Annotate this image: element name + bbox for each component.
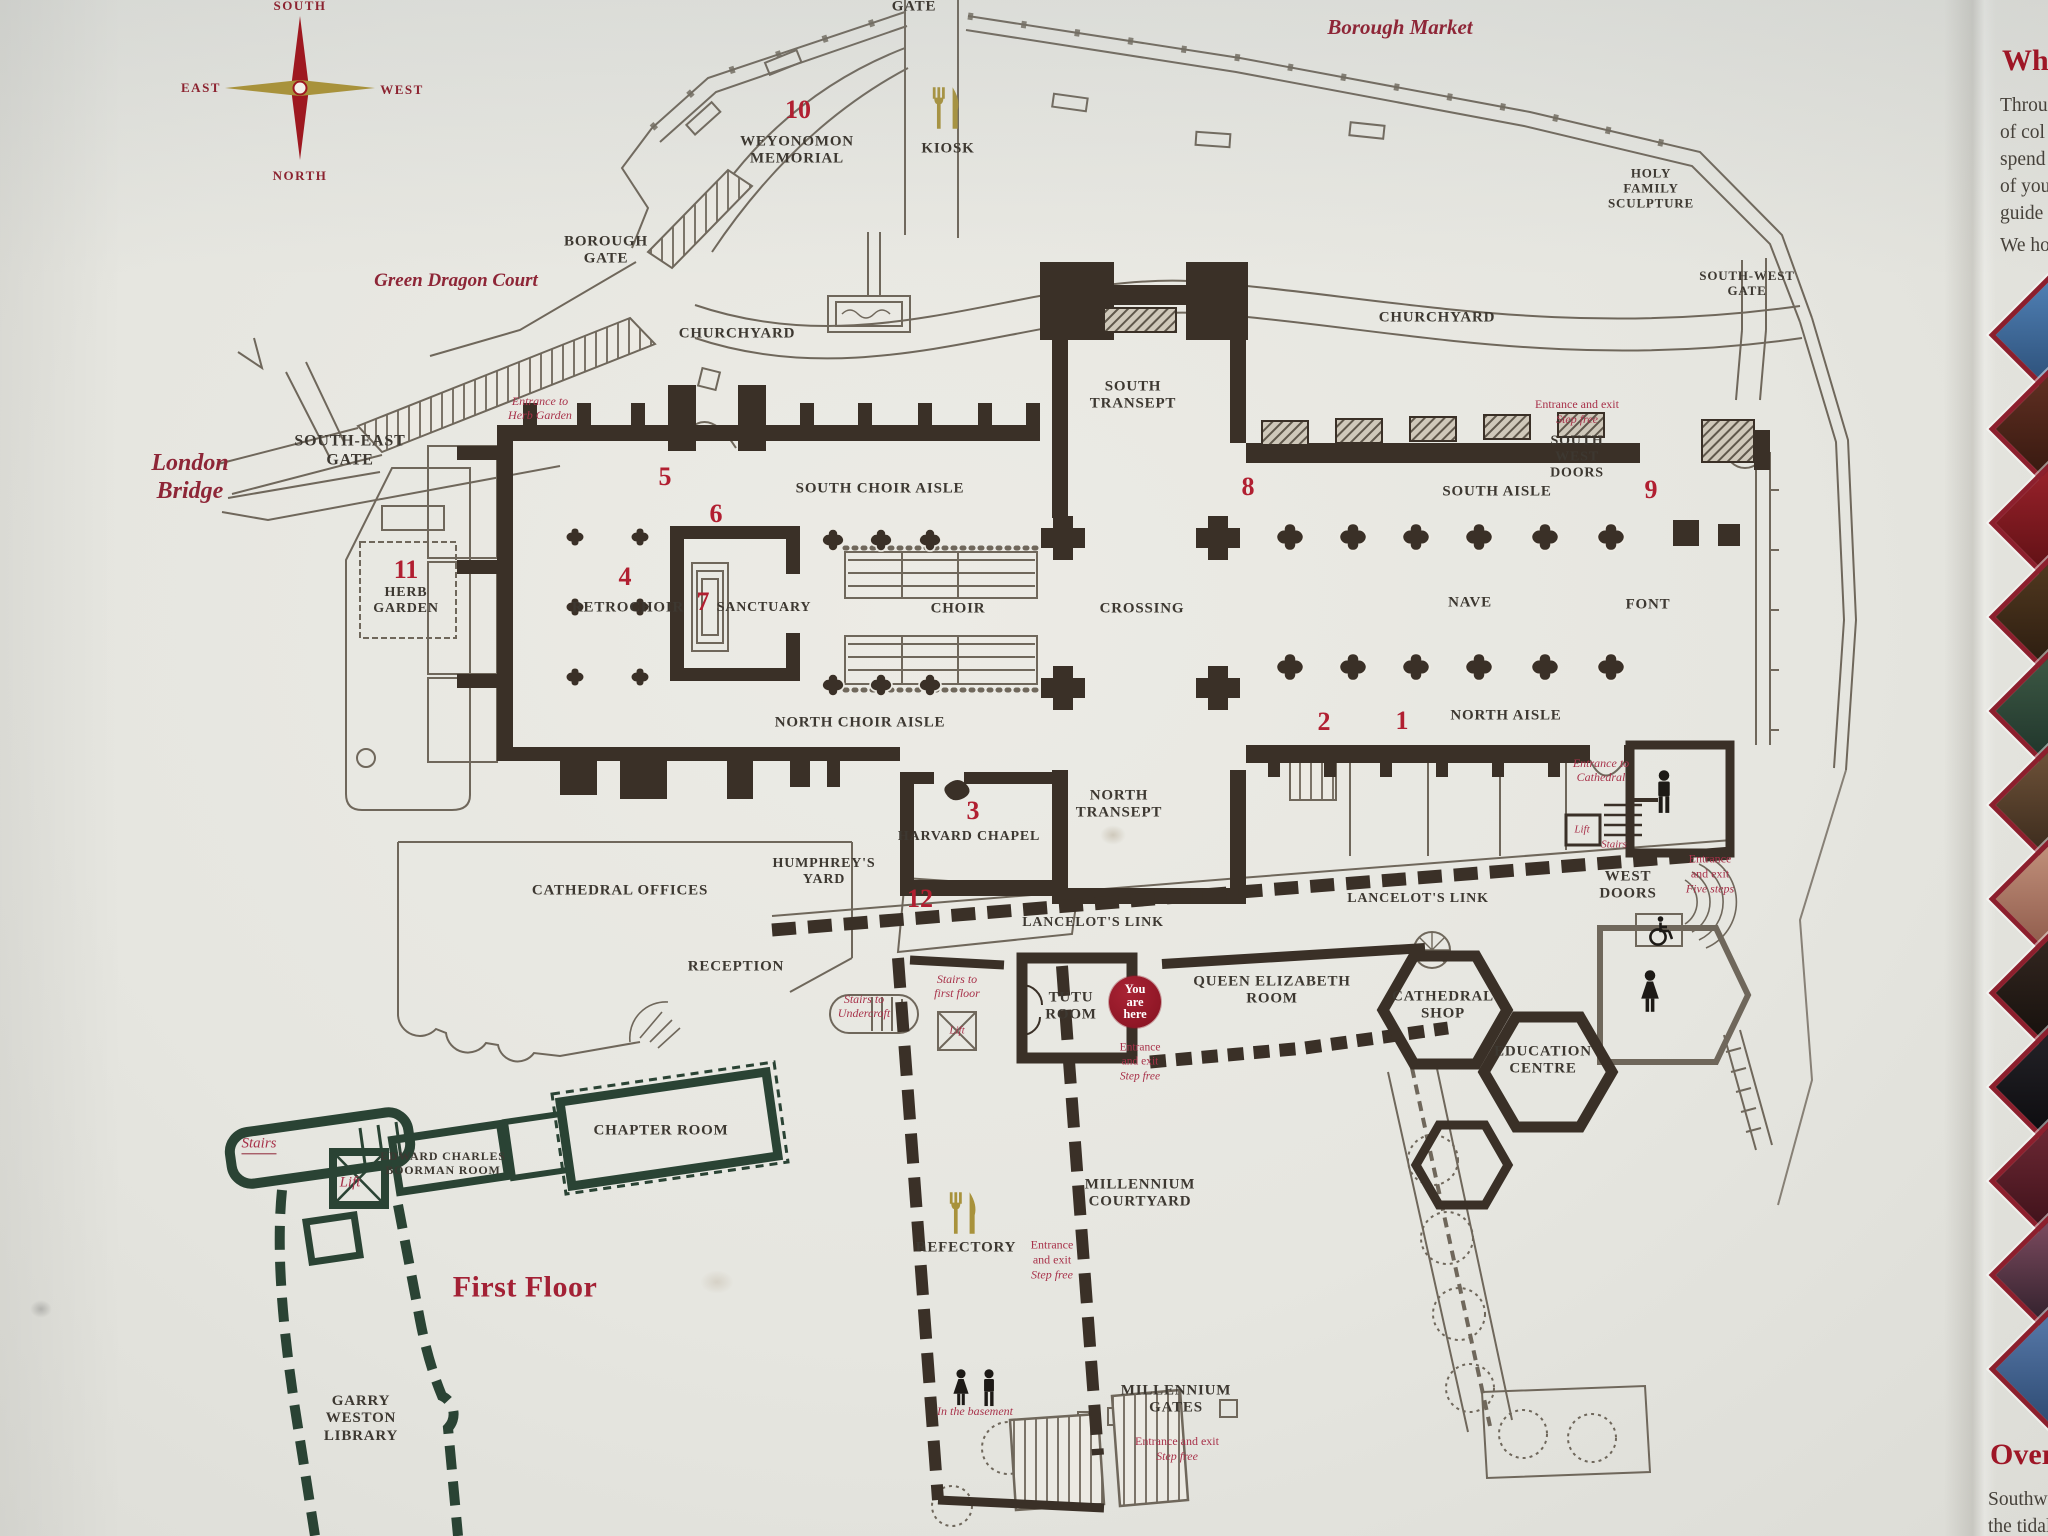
sidebar-top-paragraph: Throu of col spend of you guide xyxy=(2000,92,2048,227)
sidebar-text-line: of col xyxy=(2000,119,2048,146)
num-6: 6 xyxy=(710,499,723,529)
num-4: 4 xyxy=(619,562,632,592)
num-12: 12 xyxy=(907,884,933,914)
millennium-courtyard-label: MILLENNIUMCOURTYARD xyxy=(1085,1177,1196,1212)
south-aisle-label: SOUTH AISLE xyxy=(1442,483,1551,500)
sidebar-text-line: spend xyxy=(2000,146,2048,173)
sidebar-text-line: of you xyxy=(2000,173,2048,200)
compass-rose: SOUTH EAST WEST NORTH xyxy=(168,0,432,185)
sidebar-bottom-paragraph: Southwa the tidal xyxy=(1988,1486,2048,1536)
in-the-basement-note: In the basement xyxy=(937,1405,1013,1419)
north-aisle-label: NORTH AISLE xyxy=(1450,707,1561,724)
stairs-cathedral-note: Stairs xyxy=(1601,839,1627,852)
female-toilet-icon xyxy=(1641,970,1659,1012)
weyonomon-memorial-label: WEYONOMONMEMORIAL xyxy=(740,134,854,169)
compass-west-label: WEST xyxy=(380,82,424,98)
num-11: 11 xyxy=(394,555,419,585)
nave-label: NAVE xyxy=(1448,594,1492,611)
sidebar-top-heading: Wh xyxy=(2002,44,2048,78)
entrance-refectory-note: Entranceand exitStep free xyxy=(1031,1238,1074,1283)
south-west-doors-label: SOUTHWESTDOORS xyxy=(1550,434,1604,483)
num-5: 5 xyxy=(659,462,672,492)
millennium-gates-label: MILLENNIUMGATES xyxy=(1121,1383,1232,1418)
tutu-room-label: TUTUROOM xyxy=(1045,990,1097,1025)
north-choir-aisle-label: NORTH CHOIR AISLE xyxy=(775,714,946,731)
sidebar-text-line: Throu xyxy=(2000,92,2048,119)
south-west-gate-label: SOUTH-WESTGATE xyxy=(1699,268,1794,298)
education-centre-label: EDUCATIONCENTRE xyxy=(1494,1044,1592,1079)
south-choir-aisle-label: SOUTH CHOIR AISLE xyxy=(796,480,965,497)
refectory-label: REFECTORY xyxy=(916,1239,1017,1256)
lift-cathedral-note: Lift xyxy=(1574,824,1589,837)
num-2: 2 xyxy=(1318,707,1331,737)
chapter-room-label: CHAPTER ROOM xyxy=(593,1122,728,1139)
num-8: 8 xyxy=(1242,472,1255,502)
map-board: SOUTH EAST WEST NORTH You are here GATEB… xyxy=(0,0,2048,1536)
sidebar-text-line: guide xyxy=(2000,200,2048,227)
queen-elizabeth-room-label: QUEEN ELIZABETHROOM xyxy=(1193,974,1350,1009)
crossing-label: CROSSING xyxy=(1100,600,1185,617)
board-fold-crease xyxy=(1944,0,1996,1536)
sanctuary-label: SANCTUARY xyxy=(717,600,812,616)
cathedral-offices-label: CATHEDRAL OFFICES xyxy=(532,882,708,899)
stairs-first-floor-wing-note: Stairs xyxy=(241,1135,276,1154)
first-floor-title: First Floor xyxy=(453,1271,598,1306)
garry-weston-library-label: GARRYWESTONLIBRARY xyxy=(324,1393,398,1445)
kiosk-label: KIOSK xyxy=(921,140,974,157)
stairs-first-floor-note: Stairs tofirst floor xyxy=(934,973,980,1001)
reception-label: RECEPTION xyxy=(688,958,784,975)
wheelchair-icon xyxy=(1650,916,1672,944)
entrance-courtyard-note: Entranceand exitStep free xyxy=(1120,1040,1161,1083)
boorman-room-label: EDWARD CHARLESBOORMAN ROOM xyxy=(380,1150,506,1178)
compass-south-label: SOUTH xyxy=(273,0,326,14)
choir-label: CHOIR xyxy=(931,600,986,617)
entrance-southwest-note: Entrance and exitStep free xyxy=(1535,397,1619,427)
churchyard-east-label: CHURCHYARD xyxy=(1379,309,1496,326)
west-doors-label: WESTDOORS xyxy=(1599,869,1656,904)
gate-label: GATE xyxy=(892,0,937,16)
north-transept-label: NORTHTRANSEPT xyxy=(1076,788,1162,823)
floor-plan-drawing xyxy=(0,0,2048,1536)
kiosk-food-icon xyxy=(934,87,958,128)
green-dragon-court-label: Green Dragon Court xyxy=(374,270,538,292)
num-1: 1 xyxy=(1396,706,1409,736)
compass-north-label: NORTH xyxy=(273,168,328,184)
you-are-here-marker: You are here xyxy=(1109,976,1161,1028)
borough-gate-label: BOROUGHGATE xyxy=(564,234,648,269)
retrochoir-label: RETROCHOIR xyxy=(572,599,684,616)
compass-east-label: EAST xyxy=(181,80,221,96)
lancelots-link-west-label: LANCELOT'S LINK xyxy=(1022,915,1164,931)
churchyard-west-label: CHURCHYARD xyxy=(679,325,796,342)
sidebar-text-line: We ho xyxy=(2000,232,2048,259)
stairs-undercroft-note: Stairs toUndercroft xyxy=(838,993,890,1021)
holy-family-sculpture-label: HOLYFAMILYSCULPTURE xyxy=(1608,165,1694,210)
entrance-herb-garden-note: Entrance toHerb Garden xyxy=(508,395,572,423)
you-are-here-line1: You xyxy=(1125,983,1146,996)
male-toilet-icon xyxy=(1658,770,1669,813)
herb-garden-label: HERBGARDEN xyxy=(373,585,438,617)
refectory-food-icon xyxy=(951,1192,975,1233)
font-label: FONT xyxy=(1626,596,1671,613)
lancelots-link-east-label: LANCELOT'S LINK xyxy=(1347,891,1489,907)
sidebar-text-line: Southwa xyxy=(1988,1486,2048,1513)
entrance-cathedral-note: Entrance toCathedral xyxy=(1573,757,1629,785)
lift-crossed-note: Lift xyxy=(949,1025,964,1038)
south-transept-label: SOUTHTRANSEPT xyxy=(1090,379,1176,414)
humphreys-yard-label: HUMPHREY'SYARD xyxy=(773,856,876,888)
cathedral-shop-label: CATHEDRALSHOP xyxy=(1392,989,1494,1024)
entrance-gates-note: Entrance and exitStep free xyxy=(1135,1434,1219,1464)
visitor-complex-walls xyxy=(772,745,1732,1508)
num-3: 3 xyxy=(967,796,980,826)
harvard-chapel-label: HARVARD CHAPEL xyxy=(898,829,1040,845)
you-are-here-line3: here xyxy=(1123,1008,1146,1021)
entrance-west-note: Entranceand exitFive steps xyxy=(1686,852,1734,897)
south-east-gate-label: SOUTH-EASTGATE xyxy=(294,432,405,469)
basement-toilets-icons xyxy=(953,1369,994,1406)
london-bridge-label: LondonBridge xyxy=(151,450,228,506)
num-9: 9 xyxy=(1645,475,1658,505)
lift-first-floor-note: Lift xyxy=(340,1174,361,1191)
num-10: 10 xyxy=(785,95,811,125)
sidebar-text-line: the tidal xyxy=(1988,1513,2048,1536)
sidebar-bottom-heading: Over xyxy=(1990,1438,2048,1472)
num-7: 7 xyxy=(697,587,710,617)
borough-market-label: Borough Market xyxy=(1327,15,1472,39)
